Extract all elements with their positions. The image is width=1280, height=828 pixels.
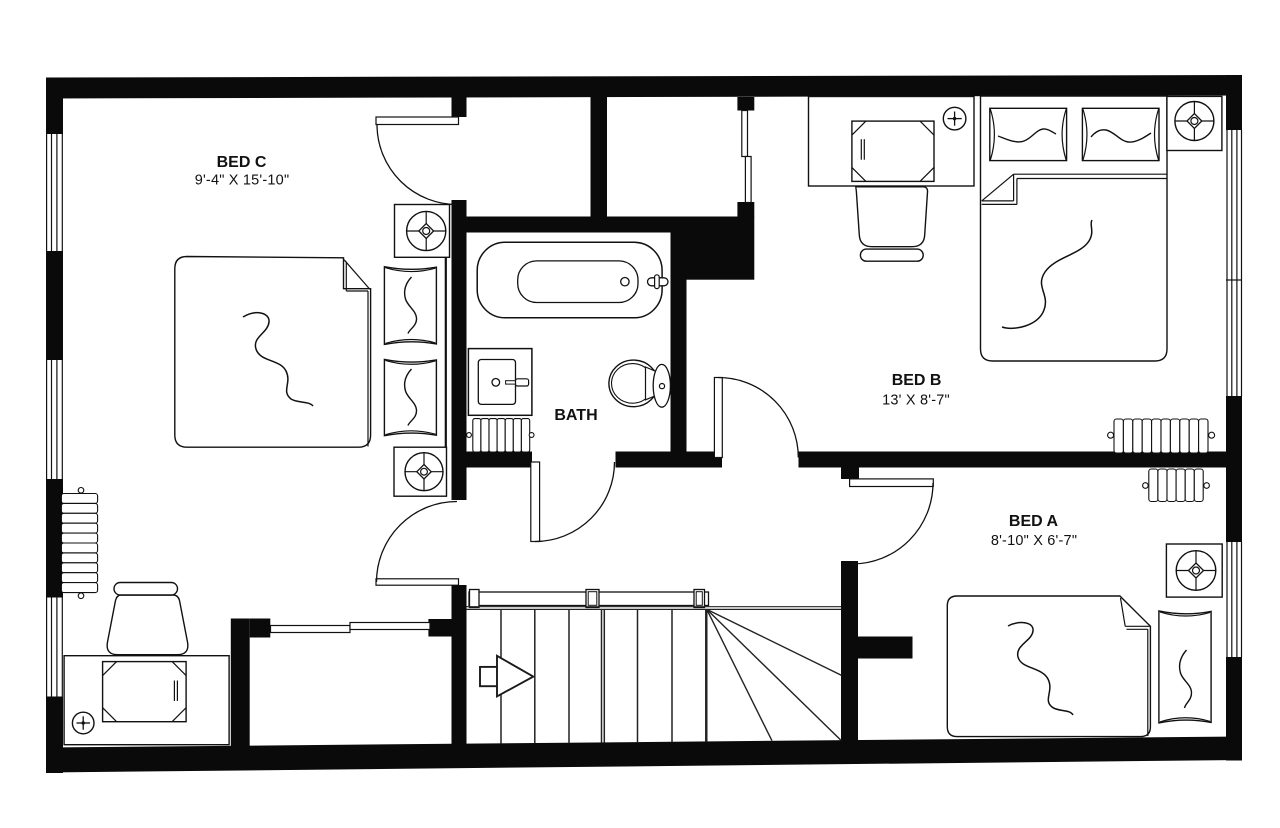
svg-text:13' X 8'-7": 13' X 8'-7" (882, 393, 950, 409)
svg-text:BED C: BED C (217, 154, 267, 171)
svg-text:BED A: BED A (1009, 513, 1059, 530)
svg-text:BATH: BATH (554, 407, 597, 424)
svg-text:9'-4" X 15'-10": 9'-4" X 15'-10" (195, 173, 290, 189)
svg-text:BED B: BED B (892, 372, 942, 389)
svg-text:8'-10" X 6'-7": 8'-10" X 6'-7" (991, 533, 1077, 549)
